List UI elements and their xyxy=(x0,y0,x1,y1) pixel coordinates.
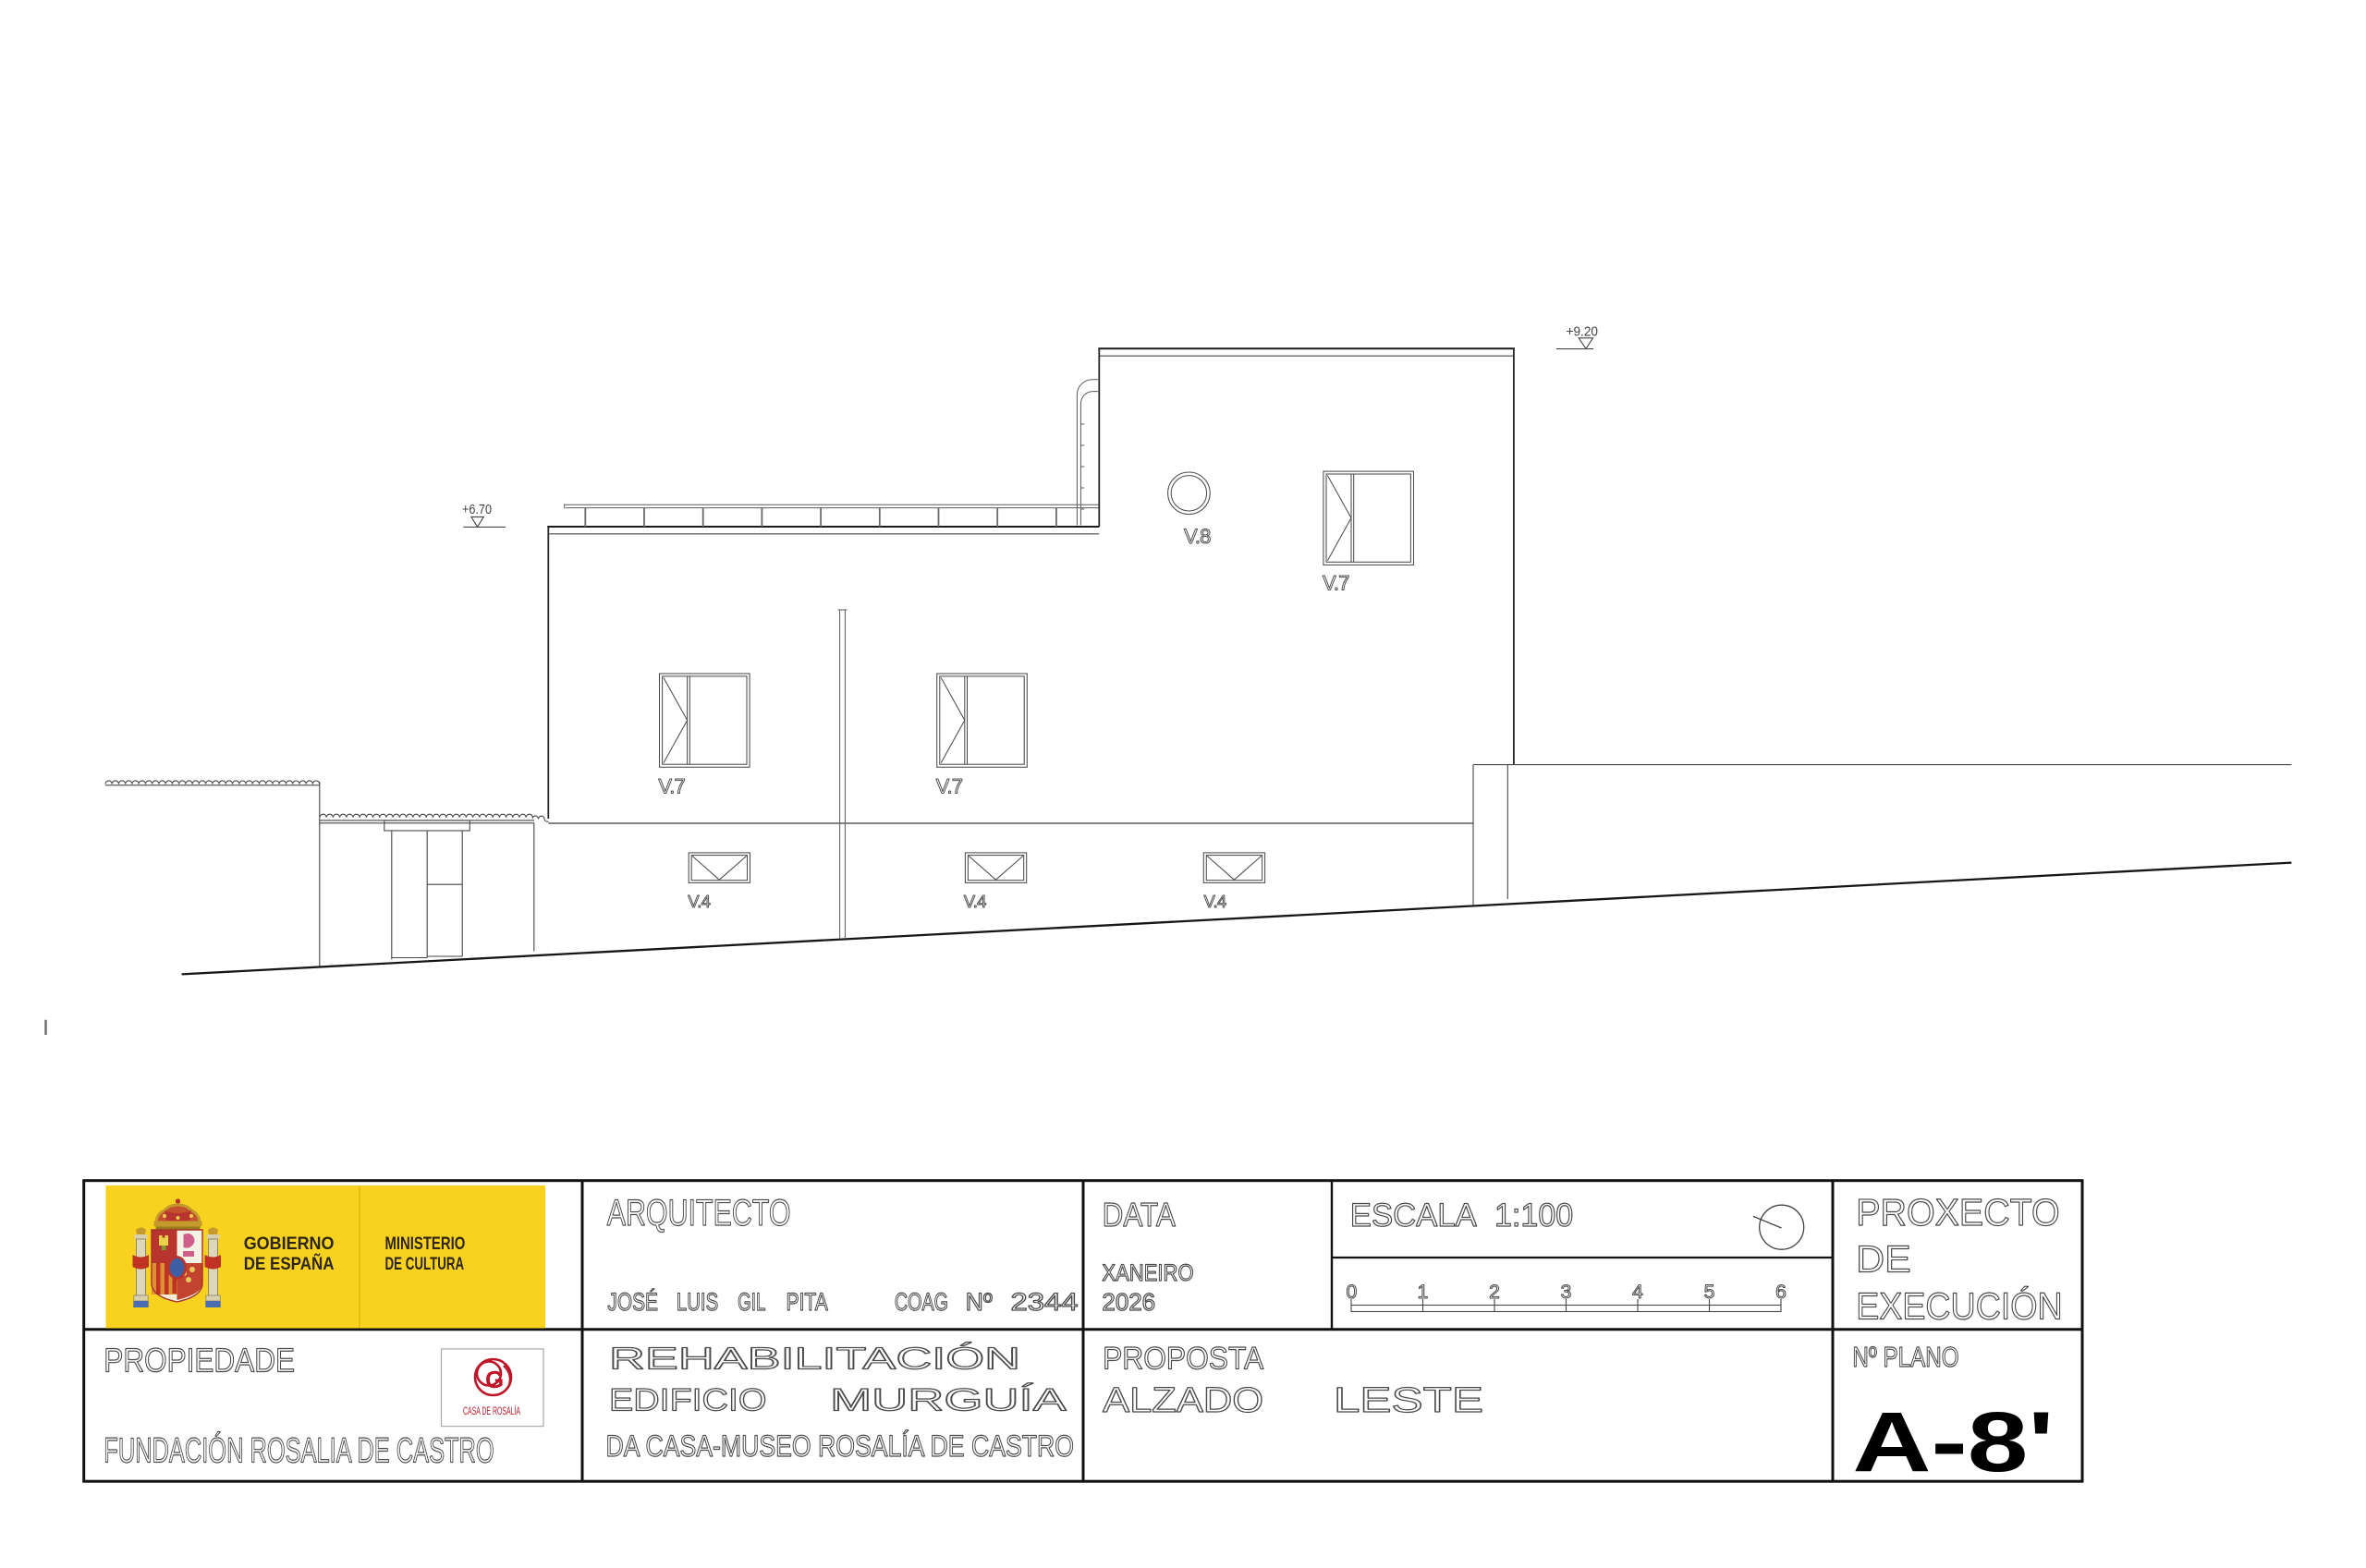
svg-text:LUIS: LUIS xyxy=(677,1288,718,1316)
svg-text:DE ESPAÑA: DE ESPAÑA xyxy=(244,1254,335,1274)
svg-text:1:100: 1:100 xyxy=(1494,1197,1573,1234)
svg-text:V.4: V.4 xyxy=(1204,892,1226,911)
svg-text:DATA: DATA xyxy=(1103,1196,1177,1234)
svg-text:PROXECTO: PROXECTO xyxy=(1856,1191,2060,1234)
svg-text:DE: DE xyxy=(1856,1238,1911,1281)
svg-text:ALZADO: ALZADO xyxy=(1103,1380,1263,1419)
svg-text:FUNDACIÓN ROSALIA DE CASTRO: FUNDACIÓN ROSALIA DE CASTRO xyxy=(104,1431,494,1470)
svg-text:PROPIEDADE: PROPIEDADE xyxy=(104,1342,295,1380)
svg-text:LESTE: LESTE xyxy=(1334,1380,1483,1419)
svg-text:A-8': A-8' xyxy=(1852,1395,2054,1489)
svg-text:XANEIRO: XANEIRO xyxy=(1102,1260,1193,1286)
svg-text:PROPOSTA: PROPOSTA xyxy=(1103,1342,1263,1377)
svg-text:REHABILITACIÓN: REHABILITACIÓN xyxy=(609,1341,1020,1375)
svg-text:ESCALA: ESCALA xyxy=(1350,1197,1478,1234)
svg-text:+9.20: +9.20 xyxy=(1567,325,1599,340)
svg-text:DA CASA-MUSEO ROSALÍA DE CASTR: DA CASA-MUSEO ROSALÍA DE CASTRO xyxy=(606,1429,1075,1463)
svg-text:EXECUCIÓN: EXECUCIÓN xyxy=(1856,1284,2063,1327)
svg-text:PITA: PITA xyxy=(787,1288,829,1316)
svg-text:GIL: GIL xyxy=(738,1288,765,1316)
svg-text:MINISTERIO: MINISTERIO xyxy=(385,1234,466,1254)
svg-text:2026: 2026 xyxy=(1102,1288,1155,1316)
svg-text:V.4: V.4 xyxy=(964,892,986,911)
svg-text:EDIFICIO: EDIFICIO xyxy=(609,1382,767,1417)
svg-text:V.7: V.7 xyxy=(936,775,963,798)
svg-text:DE CULTURA: DE CULTURA xyxy=(385,1255,465,1274)
svg-text:MURGUÍA: MURGUÍA xyxy=(830,1382,1067,1417)
svg-text:ARQUITECTO: ARQUITECTO xyxy=(607,1193,791,1234)
svg-text:V.7: V.7 xyxy=(658,775,685,798)
svg-text:COAG: COAG xyxy=(895,1288,948,1316)
svg-text:Nº PLANO: Nº PLANO xyxy=(1852,1341,1958,1373)
svg-text:+6.70: +6.70 xyxy=(462,503,492,517)
svg-text:2344: 2344 xyxy=(1011,1288,1079,1316)
svg-text:V.8: V.8 xyxy=(1184,525,1211,548)
svg-text:Nº: Nº xyxy=(966,1288,993,1316)
svg-text:CASA DE ROSALÍA: CASA DE ROSALÍA xyxy=(463,1405,520,1417)
svg-text:V.4: V.4 xyxy=(688,892,710,911)
svg-text:GOBIERNO: GOBIERNO xyxy=(244,1234,335,1254)
svg-text:G: G xyxy=(485,1366,504,1393)
svg-text:JOSÉ: JOSÉ xyxy=(607,1288,658,1316)
svg-text:V.7: V.7 xyxy=(1323,572,1349,595)
